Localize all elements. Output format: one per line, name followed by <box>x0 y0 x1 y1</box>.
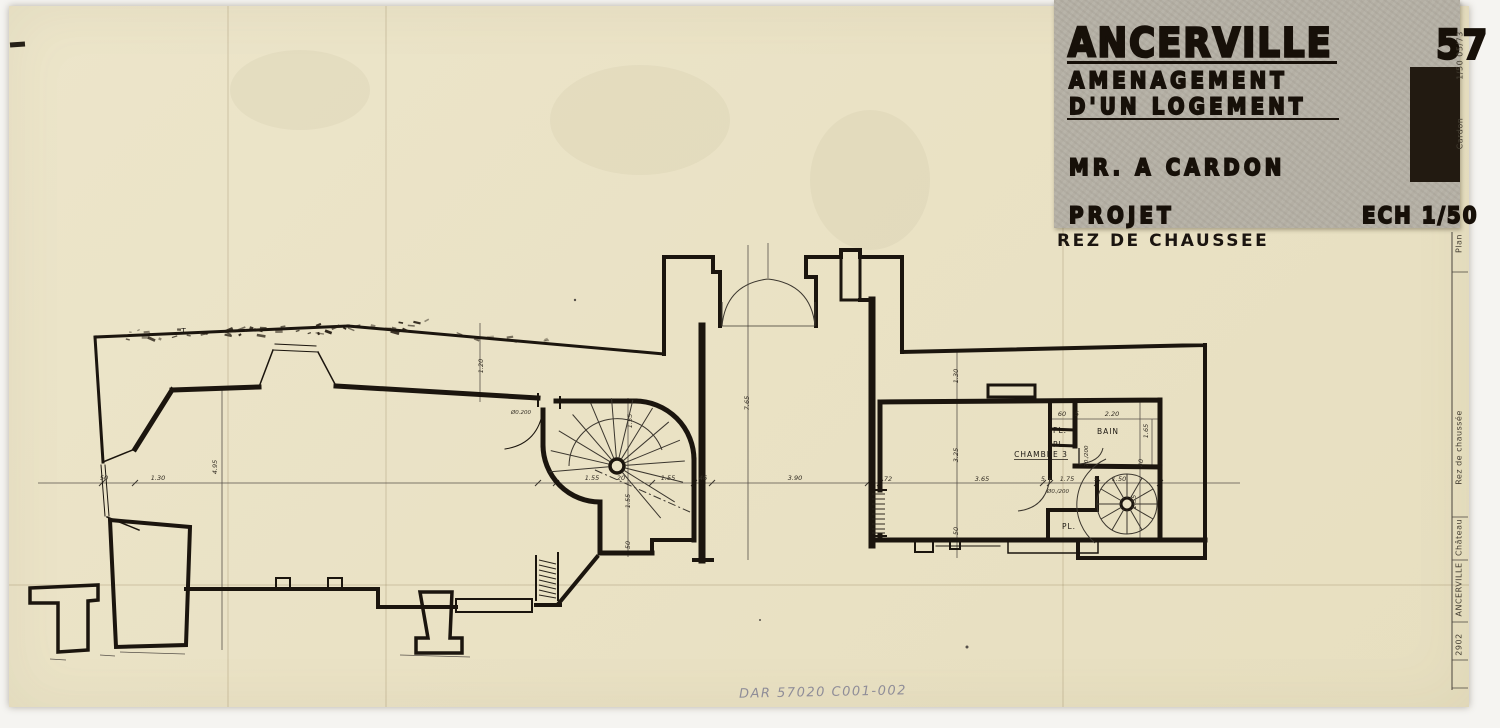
dim-label: 7.65 <box>743 396 751 410</box>
title-client: MR. A CARDON <box>1069 155 1285 181</box>
dim-label: 4.95 <box>211 460 219 474</box>
room-label: BAIN <box>1097 427 1119 436</box>
stair-tread-line <box>624 440 680 463</box>
dim-label: 50 <box>624 541 632 549</box>
hatch-speckle <box>126 338 130 340</box>
title-line-amenagement: AMENAGEMENT <box>1069 68 1288 94</box>
dim-label: 3.65 <box>975 475 989 483</box>
dim-label: 1.20 <box>477 359 485 373</box>
hatch-speckle <box>230 330 236 332</box>
title-rule-1 <box>1067 61 1337 64</box>
hatch-speckle <box>129 331 132 332</box>
hatch-speckle <box>413 321 421 325</box>
dim-label: 50 <box>100 474 108 482</box>
left-building-walls <box>30 326 694 653</box>
hatch-speckle <box>308 332 312 334</box>
title-margin-label: Cardon <box>1456 94 1465 174</box>
hatch-speckle <box>158 337 162 340</box>
paper-smudges <box>230 50 930 250</box>
hatch-speckle <box>147 336 155 342</box>
hatch-speckle <box>424 318 429 322</box>
stair-tread-line <box>625 461 685 465</box>
hatch-speckle <box>385 328 391 330</box>
scanned-plan-sheet: 501.301.55201.55463.90723.6551.7551.50Ø0… <box>0 0 1500 728</box>
left-hatched-window <box>539 560 556 598</box>
stair-tread-line <box>591 403 614 458</box>
margin-strip-label: Rez de chaussée <box>1455 408 1464 488</box>
margin-strip-label: 2902 <box>1455 605 1464 685</box>
room-label: PL. <box>1053 440 1067 449</box>
dim-label: Ø0.200 <box>510 409 532 416</box>
dim-label: 60 <box>1058 410 1066 418</box>
dim-label: 1.55 <box>585 474 599 482</box>
dim-label: 1.65 <box>1142 424 1150 438</box>
title-block: ANCERVILLE 57 AMENAGEMENT D'UN LOGEMENT … <box>1054 0 1460 228</box>
hatch-speckle <box>325 329 333 334</box>
dim-label: 2.20 <box>1105 410 1119 418</box>
dim-label: 46 <box>699 474 707 482</box>
dim-label: 20 <box>617 474 625 482</box>
margin-strip-label: Plan <box>1455 204 1464 284</box>
spiral-staircase-left <box>549 398 690 518</box>
dim-label: 1.50 <box>1112 475 1126 483</box>
dim-label: 40 <box>1137 459 1145 467</box>
stair-tread-line <box>612 398 617 458</box>
hatch-speckle <box>398 321 403 323</box>
dim-label: 1.55 <box>626 414 634 428</box>
stair-tread-line <box>551 451 609 465</box>
spiral-staircase-right <box>1077 459 1157 543</box>
hatch-speckle <box>238 333 241 336</box>
dim-label: 1.55 <box>624 494 632 508</box>
title-margin-label: 1/50 05/73 <box>1456 16 1465 96</box>
hatch-speckle <box>408 325 415 327</box>
title-phase: PROJET <box>1069 203 1175 229</box>
dim-label: 5 <box>1094 475 1098 483</box>
stair-tread-line <box>549 467 609 472</box>
room-label: PL. <box>1062 522 1076 531</box>
dim-label: 1.75 <box>1060 475 1074 483</box>
dim-label: 5 <box>1041 475 1045 483</box>
courtyard-walls <box>664 250 902 560</box>
dim-label: 1.55 <box>1130 495 1138 509</box>
dim-label: 5 <box>1075 410 1079 418</box>
dim-label: 50 <box>952 527 960 535</box>
dim-label: 3.90 <box>788 474 802 482</box>
title-black-box <box>1410 67 1460 182</box>
gateway-double-door <box>722 279 815 326</box>
stair-tread-line <box>1101 489 1122 501</box>
hatch-speckle <box>507 336 514 339</box>
stair-tread-line <box>1112 509 1124 530</box>
dim-label: 1.30 <box>952 369 960 383</box>
dim-label: 1.30 <box>151 474 165 482</box>
drawing-subtitle: REZ DE CHAUSSEE <box>1057 231 1269 251</box>
dim-label: 1.55 <box>661 474 675 482</box>
dim-label: 3.25 <box>952 448 960 462</box>
dim-label: 72 <box>884 475 892 483</box>
hatch-speckle <box>144 331 150 333</box>
dim-label: Ø0./200 <box>1046 488 1069 495</box>
hatch-speckle <box>275 330 282 333</box>
hatch-speckle <box>172 335 178 338</box>
room-label: CHAMBRE 3 <box>1014 450 1068 459</box>
hatch-speckle <box>296 330 300 333</box>
dim-label: 70./200 <box>1084 445 1090 467</box>
stair-tread-line <box>559 431 610 462</box>
room-label: T <box>180 327 187 336</box>
hatch-speckle <box>260 327 267 329</box>
hatch-speckle <box>137 329 140 331</box>
stair-tread-line <box>1101 507 1122 519</box>
room-label: PL. <box>1053 426 1067 435</box>
hatch-speckle <box>187 334 191 336</box>
hatch-speckle <box>257 334 266 338</box>
title-line-logement: D'UN LOGEMENT <box>1069 94 1307 120</box>
title-rule-2 <box>1067 118 1339 120</box>
